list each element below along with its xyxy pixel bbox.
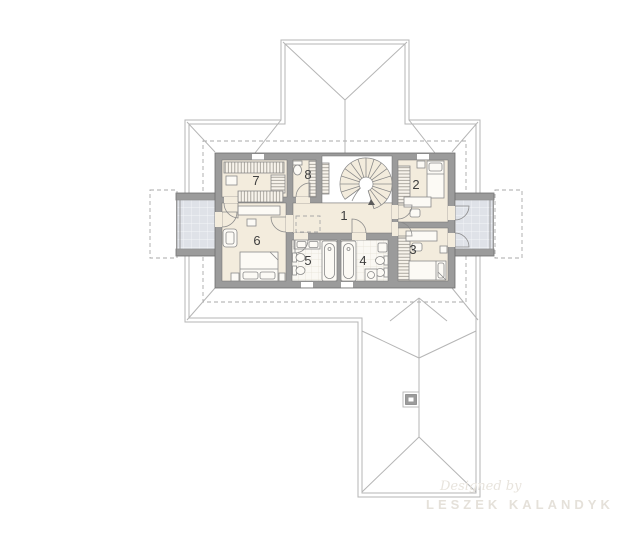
dresser-room7 [226,176,237,185]
left-balcony-tiles [177,200,219,249]
door-opening-room2 [392,205,398,219]
right-eave-dashed [495,190,522,258]
toilet-bath4 [376,257,385,265]
furniture-room7 [226,176,237,185]
right-balcony-wall-bottom [450,249,494,256]
left-eave-dashed [150,190,177,258]
door-opening-room3-balcony [448,233,455,247]
pillow-room3 [438,263,444,278]
nightstand-left-room6 [231,273,239,281]
floor-plan-page: 1 2 3 4 5 6 7 8 Designed by LESZEK KALAN… [0,0,638,556]
pillow-left-room6 [243,272,258,279]
sink-bath4 [378,243,387,252]
pillow-right-room6 [260,272,275,279]
desk-room2 [404,197,431,207]
watermark-name-line: LESZEK KALANDYK [426,497,614,512]
room-label-1: 1 [340,208,347,223]
toilet-tank-room8 [293,161,302,165]
room-label-2: 2 [412,177,419,192]
wardrobe-room7-bottom [238,191,283,202]
door-opening-room6-hall [286,215,293,232]
roof-window-top-left [252,154,264,160]
door-opening-room8 [296,197,310,203]
door-opening-room2-balcony [448,206,455,220]
chair-room2 [410,209,420,217]
wardrobe-room7-right [271,175,285,193]
door-opening-room6-balcony [215,212,222,227]
floor-plan-drawing: 1 2 3 4 5 6 7 8 Designed by LESZEK KALAN… [0,0,638,556]
door-opening-room3 [392,222,398,236]
radiator-stairwell [322,163,329,194]
room-label-3: 3 [409,242,416,257]
wardrobe-room3 [398,238,410,280]
room-label-7: 7 [252,173,259,188]
pillow-room2 [429,163,442,171]
roof-window-bottom-left [301,282,313,288]
room-label-6: 6 [253,233,260,248]
right-balcony-wall-top [450,193,494,200]
toilet-room8 [294,165,302,175]
designer-watermark: Designed by LESZEK KALANDYK [426,479,614,512]
roof-window-top-right [417,154,429,160]
room-label-8: 8 [304,167,311,182]
roof-window-bottom-right [341,282,353,288]
nightstand-room2 [417,161,425,168]
side-table-room3 [440,246,447,253]
washing-machine-bath4 [365,269,377,281]
right-balcony [450,193,494,256]
room-label-4: 4 [359,253,366,268]
door-opening-bath5 [294,233,308,240]
door-opening-room7-room6 [224,197,238,203]
fixtures-room8 [293,161,302,175]
desk-room6 [238,206,280,215]
nightstand-right-room6 [279,273,285,281]
wardrobe-room7-top [224,162,284,173]
room-label-5: 5 [304,253,311,268]
door-opening-bath4 [352,233,366,240]
watermark-script-line: Designed by [439,479,522,494]
right-balcony-tiles [452,200,493,249]
chimney [403,392,419,407]
table-room6 [247,219,256,226]
